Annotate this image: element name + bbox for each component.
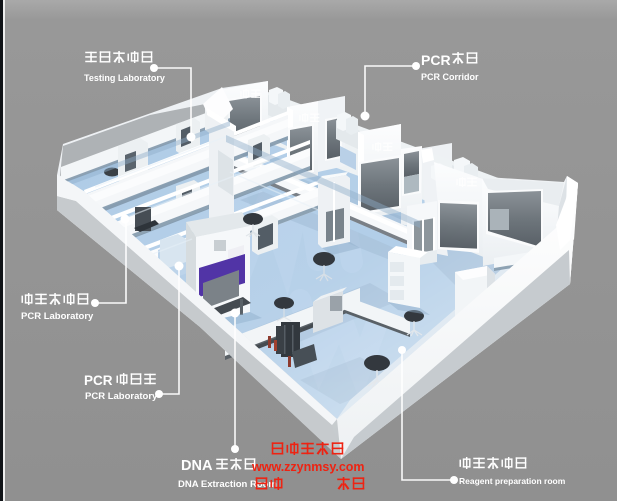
svg-text:PCR Corridor: PCR Corridor <box>421 72 479 82</box>
svg-text:PCR Laboratory: PCR Laboratory <box>21 311 94 322</box>
svg-text:DNA: DNA <box>181 458 213 474</box>
svg-text:Testing Laboratory: Testing Laboratory <box>84 73 165 83</box>
svg-text:PCR Laboratory: PCR Laboratory <box>85 391 158 402</box>
svg-text:PCR: PCR <box>84 373 113 388</box>
svg-text:PCR: PCR <box>421 52 451 68</box>
svg-text:www.zzynmsy.com: www.zzynmsy.com <box>251 460 365 474</box>
svg-text:Reagent preparation room: Reagent preparation room <box>459 476 566 486</box>
